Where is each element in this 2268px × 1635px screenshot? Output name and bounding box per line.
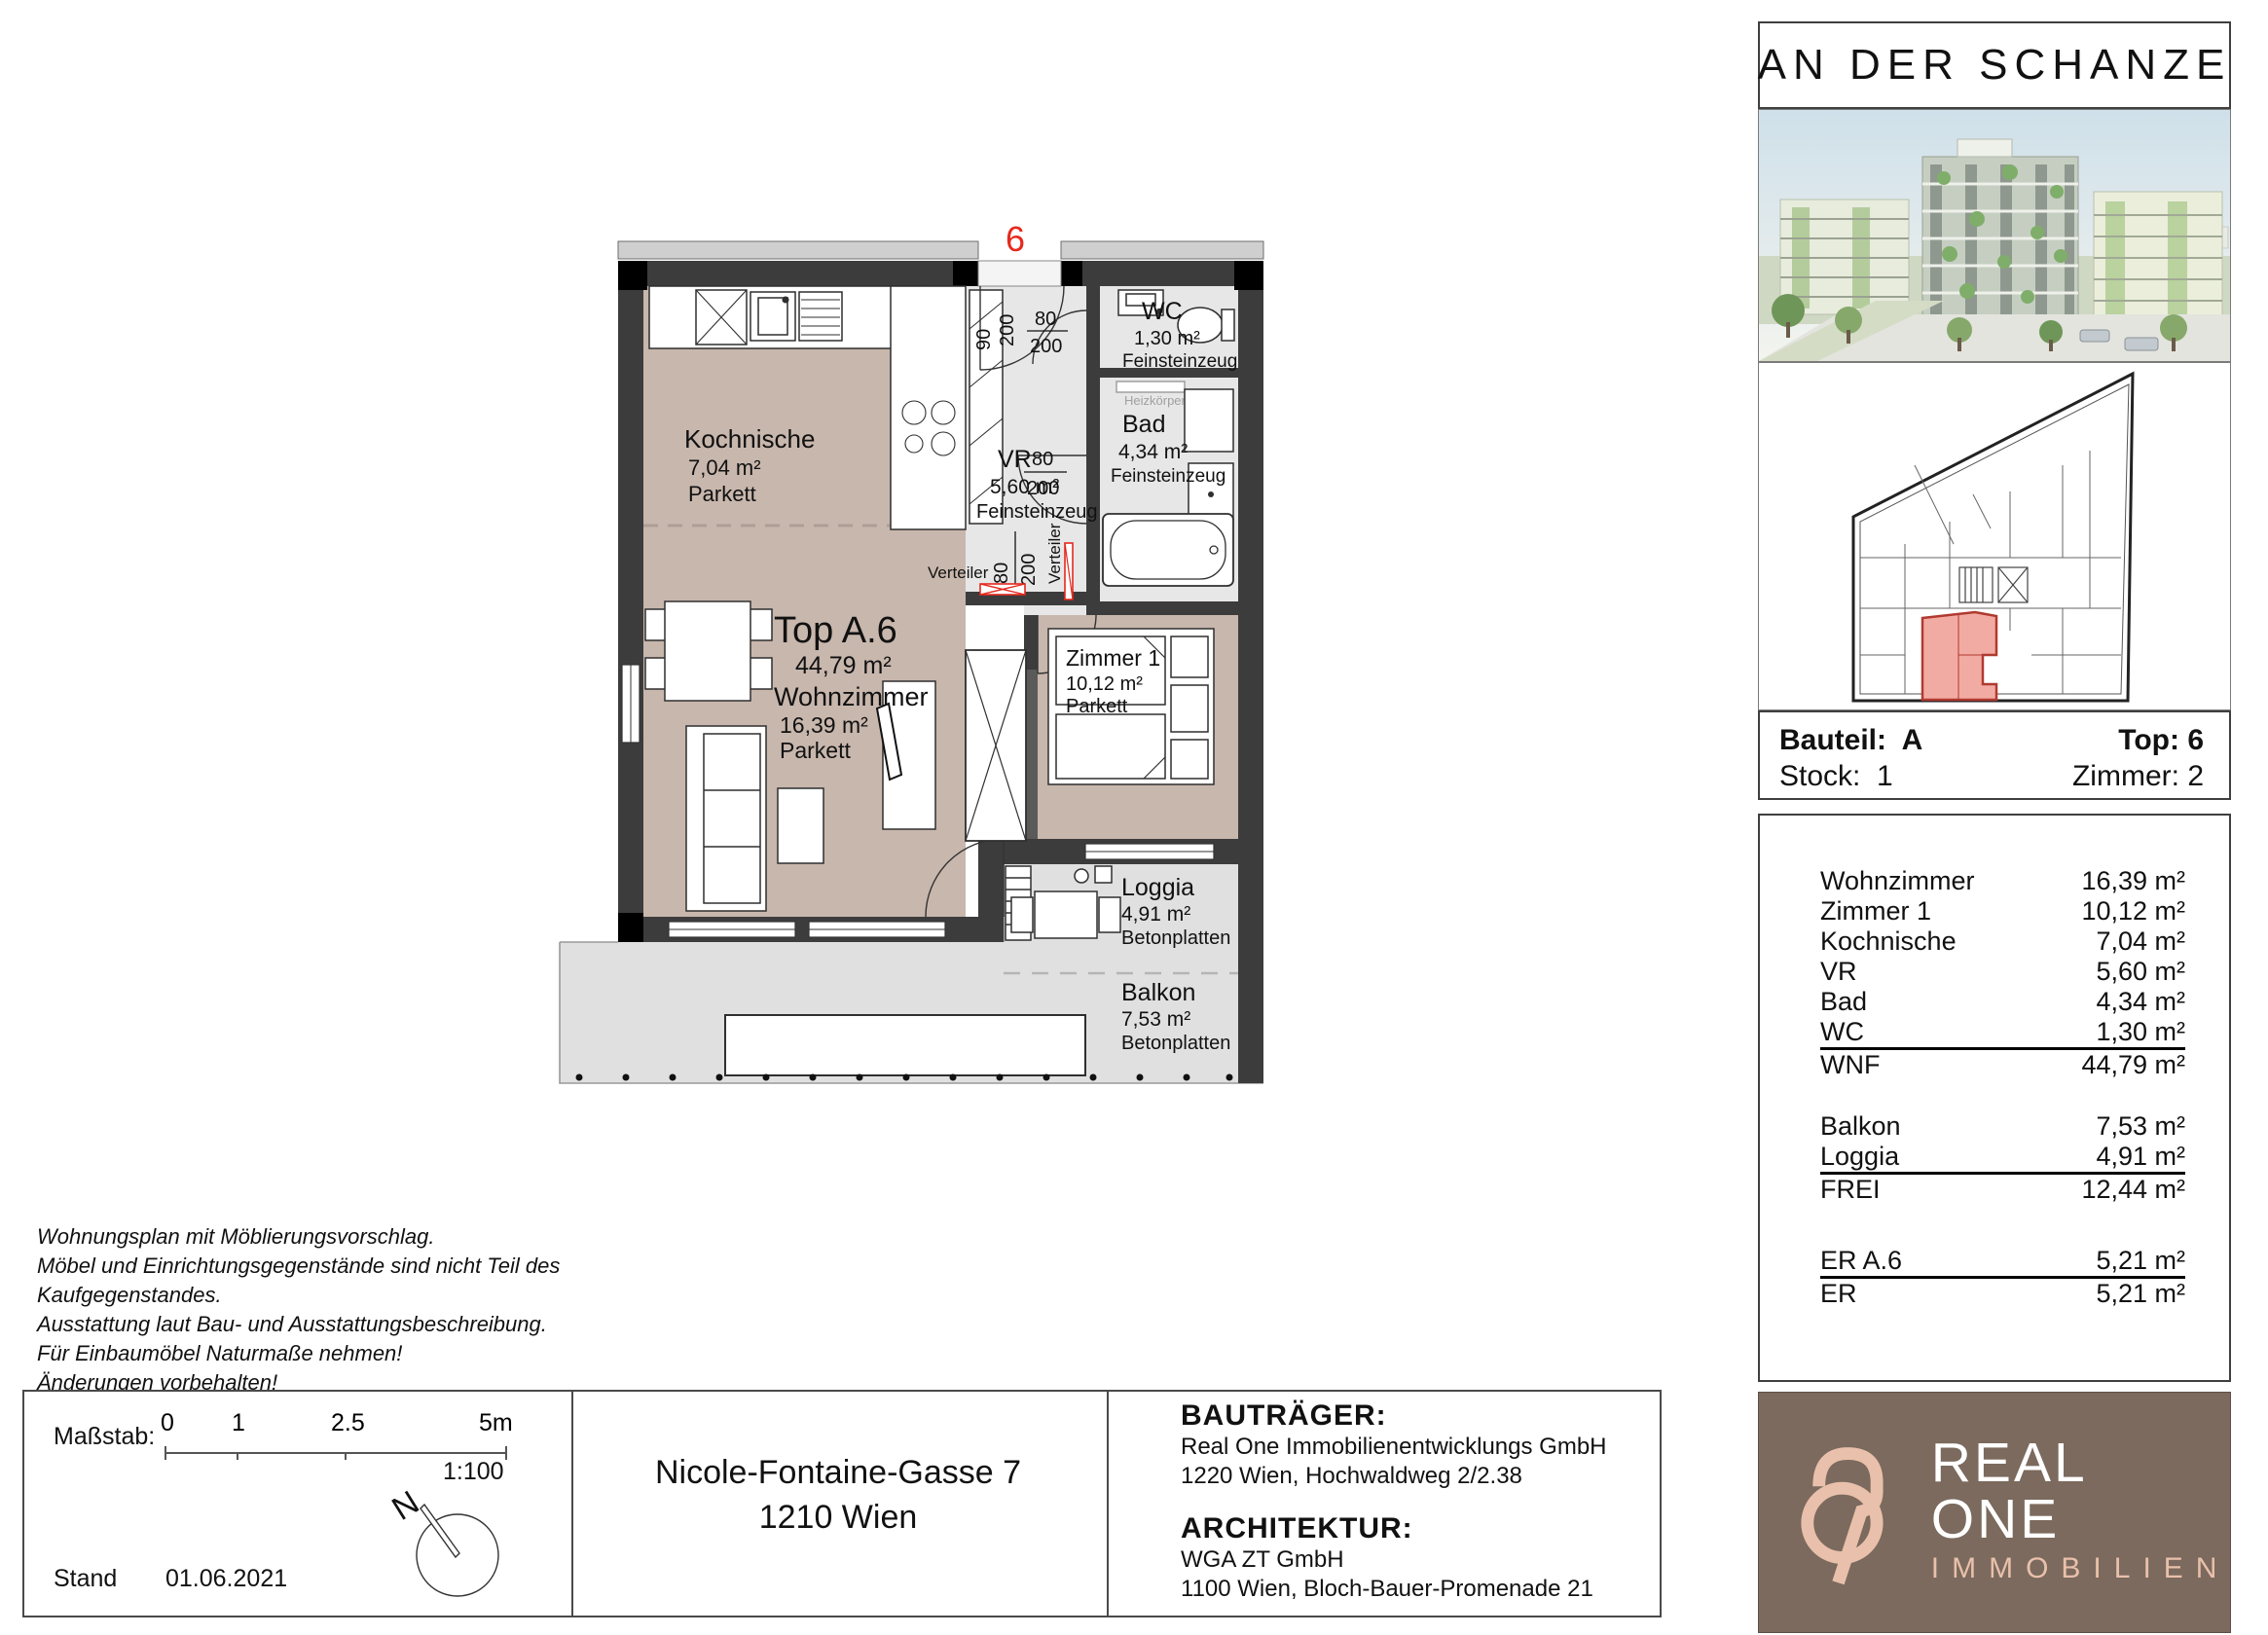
- disclaimer-line: Kaufgegenstandes.: [37, 1281, 560, 1310]
- developer-name: Real One Immobilienentwicklungs GmbH: [1181, 1433, 1638, 1462]
- unit-info-box: Bauteil: A Top: 6 Stock: 1 Zimmer: 2: [1758, 710, 2231, 800]
- table-row: ER A.65,21 m²: [1820, 1246, 2185, 1279]
- svg-text:Betonplatten: Betonplatten: [1121, 1033, 1230, 1054]
- unit-number-label: 6: [1006, 222, 1025, 259]
- top: Top: 6: [2118, 722, 2204, 758]
- architect-address: 1100 Wien, Bloch-Bauer-Promenade 21: [1181, 1575, 1638, 1604]
- table-row: Kochnische7,04 m²: [1820, 926, 2185, 957]
- svg-text:Bad: Bad: [1122, 411, 1165, 438]
- architect-heading: ARCHITEKTUR:: [1181, 1512, 1638, 1545]
- svg-text:Verteiler: Verteiler: [928, 563, 989, 582]
- svg-text:Balkon: Balkon: [1121, 979, 1195, 1006]
- building-rendering-image: [1759, 110, 2230, 361]
- disclaimer-text: Wohnungsplan mit Möblierungsvorschlag. M…: [37, 1222, 560, 1398]
- zimmer: Zimmer: 2: [2072, 758, 2204, 794]
- table-row: Bad4,34 m²: [1820, 987, 2185, 1017]
- svg-text:200: 200: [1030, 336, 1062, 357]
- table-row: WC1,30 m²: [1820, 1017, 2185, 1050]
- floor-plan-sheet: 6: [0, 0, 2268, 1635]
- svg-text:80: 80: [1032, 449, 1053, 470]
- svg-text:16,39 m²: 16,39 m²: [780, 712, 868, 738]
- svg-text:4,91 m²: 4,91 m²: [1121, 903, 1190, 926]
- svg-text:90: 90: [973, 329, 995, 350]
- floor-plan-drawing: 6: [540, 222, 1280, 1103]
- project-title-box: AN DER SCHANZE: [1758, 21, 2231, 109]
- svg-text:0: 0: [161, 1409, 174, 1436]
- svg-text:7,04 m²: 7,04 m²: [688, 455, 761, 480]
- realone-logo-icon: [1788, 1430, 1914, 1595]
- logo-brand: REAL ONE: [1931, 1435, 2230, 1547]
- logo-sub: IMMOBILIEN: [1931, 1547, 2230, 1590]
- svg-text:Loggia: Loggia: [1121, 874, 1194, 901]
- table-spacer: [1820, 1205, 2185, 1246]
- svg-text:Feinsteinzeug: Feinsteinzeug: [976, 501, 1098, 523]
- developer-address: 1220 Wien, Hochwaldweg 2/2.38: [1181, 1462, 1638, 1491]
- svg-text:Parkett: Parkett: [780, 738, 851, 763]
- svg-text:200: 200: [997, 314, 1018, 346]
- project-address: Nicole-Fontaine-Gasse 7 1210 Wien: [571, 1450, 1105, 1540]
- svg-text:4,34 m²: 4,34 m²: [1118, 441, 1188, 463]
- svg-text:80: 80: [1035, 309, 1056, 330]
- stand-date: 01.06.2021: [165, 1565, 287, 1593]
- svg-text:Feinsteinzeug: Feinsteinzeug: [1122, 351, 1237, 372]
- table-row: Zimmer 110,12 m²: [1820, 896, 2185, 926]
- svg-text:10,12 m²: 10,12 m²: [1066, 673, 1143, 695]
- table-row: ER5,21 m²: [1820, 1279, 2185, 1309]
- svg-text:1: 1: [232, 1409, 245, 1436]
- highlighted-unit: [1922, 612, 1996, 700]
- svg-text:Zimmer 1: Zimmer 1: [1066, 645, 1160, 671]
- address-line1: Nicole-Fontaine-Gasse 7: [571, 1450, 1105, 1495]
- svg-text:200: 200: [1018, 554, 1040, 586]
- area-table: Wohnzimmer16,39 m² Zimmer 110,12 m² Koch…: [1758, 814, 2231, 1382]
- table-row: Wohnzimmer16,39 m²: [1820, 866, 2185, 896]
- table-spacer: [1820, 1080, 2185, 1111]
- table-row: Balkon7,53 m²: [1820, 1111, 2185, 1142]
- sofa: [686, 726, 766, 911]
- radiator-label: Heizkörper: [1124, 393, 1187, 408]
- svg-text:Parkett: Parkett: [1066, 696, 1128, 717]
- coffee-table: [778, 788, 823, 863]
- svg-text:Kochnische: Kochnische: [684, 424, 815, 454]
- svg-text:44,79 m²: 44,79 m²: [795, 652, 892, 679]
- developer-architect-block: BAUTRÄGER: Real One Immobilienentwicklun…: [1181, 1399, 1638, 1604]
- table-row: VR5,60 m²: [1820, 957, 2185, 987]
- stand-label: Stand: [54, 1565, 117, 1593]
- key-plan: [1758, 362, 2231, 710]
- svg-text:Wohnzimmer: Wohnzimmer: [774, 682, 929, 711]
- developer-heading: BAUTRÄGER:: [1181, 1399, 1638, 1433]
- svg-text:VR: VR: [998, 446, 1032, 473]
- svg-text:Parkett: Parkett: [688, 482, 756, 506]
- bedroom-wardrobe: [966, 650, 1026, 841]
- building-rendering: [1758, 109, 2231, 362]
- bauteil: Bauteil: A: [1779, 722, 1922, 758]
- svg-text:7,53 m²: 7,53 m²: [1121, 1008, 1190, 1031]
- table-row: Loggia4,91 m²: [1820, 1142, 2185, 1175]
- disclaimer-line: Wohnungsplan mit Möblierungsvorschlag.: [37, 1222, 560, 1252]
- svg-text:WC: WC: [1142, 298, 1183, 325]
- disclaimer-line: Möbel und Einrichtungsgegenstände sind n…: [37, 1252, 560, 1281]
- svg-text:5m: 5m: [479, 1409, 513, 1436]
- svg-text:N: N: [385, 1484, 425, 1528]
- svg-text:Feinsteinzeug: Feinsteinzeug: [1111, 466, 1225, 487]
- project-title: AN DER SCHANZE: [1758, 41, 2232, 90]
- disclaimer-line: Ausstattung laut Bau- und Ausstattungsbe…: [37, 1310, 560, 1339]
- address-line2: 1210 Wien: [571, 1495, 1105, 1540]
- table-row-frei: FREI12,44 m²: [1820, 1175, 2185, 1205]
- key-plan-drawing: [1759, 363, 2230, 709]
- stock: Stock: 1: [1779, 758, 1893, 794]
- realone-logo-box: REAL ONE IMMOBILIEN: [1758, 1392, 2231, 1633]
- table-row-wnf: WNF44,79 m²: [1820, 1050, 2185, 1080]
- svg-text:5,60 m²: 5,60 m²: [990, 476, 1059, 498]
- svg-text:80: 80: [991, 563, 1012, 584]
- entry-corridor: [978, 261, 1061, 286]
- disclaimer-line: Für Einbaumöbel Naturmaße nehmen!: [37, 1339, 560, 1368]
- svg-text:2.5: 2.5: [331, 1409, 365, 1436]
- svg-text:Betonplatten: Betonplatten: [1121, 927, 1230, 949]
- svg-text:Verteiler: Verteiler: [1045, 523, 1064, 584]
- divider: [1107, 1392, 1109, 1616]
- svg-text:Top A.6: Top A.6: [774, 610, 897, 651]
- north-compass-icon: N: [378, 1479, 524, 1606]
- architect-name: WGA ZT GmbH: [1181, 1545, 1638, 1575]
- balcony-planter: [725, 1015, 1085, 1075]
- radiator: [1116, 381, 1185, 392]
- svg-text:1,30 m²: 1,30 m²: [1134, 328, 1200, 349]
